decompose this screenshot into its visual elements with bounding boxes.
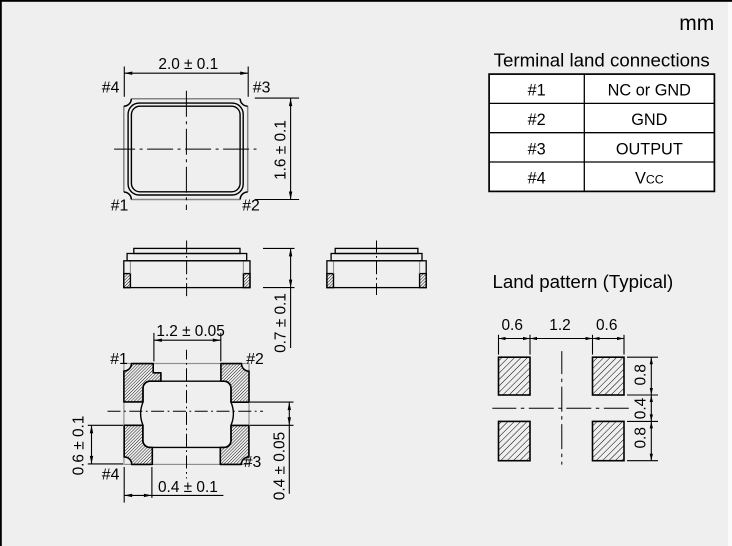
svg-text:Land pattern (Typical): Land pattern (Typical) [493,271,674,292]
svg-text:#3: #3 [253,80,271,97]
svg-text:VCC: VCC [635,170,664,188]
svg-text:NC or GND: NC or GND [608,82,691,100]
svg-text:#1: #1 [110,351,128,368]
svg-text:#3: #3 [244,454,262,471]
svg-text:GND: GND [631,111,667,129]
svg-text:0.8: 0.8 [632,427,649,448]
svg-text:#4: #4 [528,170,546,188]
svg-text:0.8: 0.8 [632,364,649,385]
svg-text:mm: mm [679,12,714,35]
svg-text:0.6 ± 0.1: 0.6 ± 0.1 [71,416,88,476]
svg-text:#2: #2 [242,197,260,214]
svg-text:0.6: 0.6 [596,317,617,334]
svg-text:0.6: 0.6 [501,317,522,334]
svg-text:OUTPUT: OUTPUT [616,140,683,158]
svg-text:0.4 ± 0.05: 0.4 ± 0.05 [272,432,289,500]
svg-text:#1: #1 [528,82,546,100]
svg-text:#3: #3 [528,140,546,158]
svg-text:1.2: 1.2 [549,317,570,334]
svg-text:#4: #4 [102,466,120,483]
svg-text:0.4 ± 0.1: 0.4 ± 0.1 [158,479,218,496]
svg-text:#4: #4 [102,80,120,97]
svg-text:#1: #1 [111,197,129,214]
svg-text:1.6 ± 0.1: 1.6 ± 0.1 [273,120,290,180]
svg-text:2.0 ± 0.1: 2.0 ± 0.1 [158,56,218,73]
svg-text:1.2 ± 0.05: 1.2 ± 0.05 [156,323,224,340]
svg-text:0.4: 0.4 [632,397,649,419]
svg-text:#2: #2 [246,351,264,368]
svg-text:Terminal land connections: Terminal land connections [494,50,710,71]
svg-text:#2: #2 [528,111,546,129]
svg-text:0.7 ± 0.1: 0.7 ± 0.1 [273,293,290,353]
